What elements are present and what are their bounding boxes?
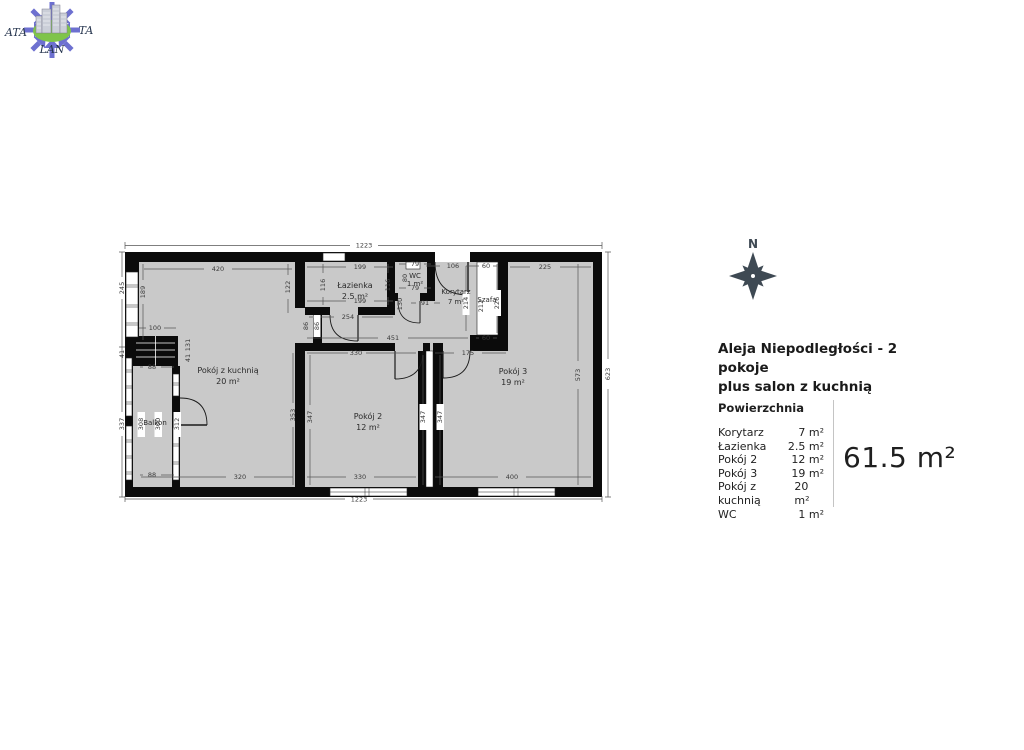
dim-label: 320 (234, 473, 246, 481)
dim-label: 225 (539, 263, 551, 271)
room-label-lazienka: Łazienka (336, 281, 372, 290)
listing-title-line2: plus salon z kuchnią (718, 378, 928, 397)
compass-star-icon (729, 252, 777, 300)
entrance-opening (435, 252, 470, 262)
dim-label: 573 (574, 369, 582, 381)
room-name: Pokój 2 (718, 453, 757, 467)
dim-label: 86 (313, 322, 321, 330)
logo-text-left: ATA (4, 26, 27, 39)
table-row: Korytarz 7 m² (718, 426, 824, 440)
dim-label: 116 (319, 279, 327, 291)
listing-title-line1: Aleja Niepodległości - 2 pokoje (718, 340, 928, 378)
room-label-wc: WC (409, 272, 421, 280)
dim-label: 88 (148, 363, 156, 371)
dim-label: 337 (118, 418, 126, 430)
dim-label: 116 (384, 279, 392, 291)
room-name: Korytarz (718, 426, 764, 440)
room-area: 19 m² (791, 467, 824, 481)
dim-label: 330 (354, 473, 366, 481)
floorplan-page: ATA TA LAN (0, 0, 1024, 750)
dim-label: 312 (173, 418, 181, 430)
dim-label: 189 (139, 286, 147, 298)
dim-label: 623 (604, 368, 612, 380)
area-table-header: Powierzchnia (718, 401, 804, 415)
room-area: 1 m² (798, 508, 824, 522)
dim-label: 88 (148, 471, 156, 479)
dim-label: 131 (184, 339, 192, 351)
room-name: Pokój z kuchnią (718, 480, 794, 507)
room-area: 20 m² (794, 480, 824, 507)
table-row: Pokój 2 12 m² (718, 453, 824, 467)
dim-label: 41 (118, 350, 126, 358)
dim-label: 130 (396, 298, 404, 310)
dim-label: 1223 (356, 242, 373, 250)
room-area-pokoj-2: 12 m² (356, 423, 380, 432)
dim-label: 175 (462, 349, 474, 357)
total-area: 61.5 m² (843, 441, 956, 474)
dim-label: 100 (149, 324, 161, 332)
dim-label: 451 (387, 334, 399, 342)
room-label-pokoj-z-kuchnia: Pokój z kuchnią (197, 365, 258, 375)
room-area-lazienka: 2.5 m² (342, 292, 368, 301)
agency-logo: ATA TA LAN (0, 0, 112, 64)
table-row: WC 1 m² (718, 508, 824, 522)
dim-label: 420 (212, 265, 224, 273)
table-row: Łazienka 2.5 m² (718, 440, 824, 454)
listing-title: Aleja Niepodległości - 2 pokoje plus sal… (718, 340, 928, 397)
room-area-pokoj-3: 19 m² (501, 378, 525, 387)
room-label-szafa: Szafa (477, 296, 496, 304)
dim-label: 91 (421, 299, 429, 307)
vent-slot (323, 253, 345, 261)
room-label-balkon: Balkon (143, 419, 167, 427)
room-area: 7 m² (798, 426, 824, 440)
room-area-korytarz: 7 m² (448, 298, 464, 306)
dim-label: 86 (302, 322, 310, 330)
dim-label: 245 (118, 282, 126, 294)
area-table: Korytarz 7 m² Łazienka 2.5 m² Pokój 2 12… (718, 426, 824, 521)
room-name: WC (718, 508, 737, 522)
dim-label: 79 (411, 260, 419, 268)
dim-label: 353 (289, 409, 297, 421)
dim-label: 60 (482, 262, 490, 270)
room-area-wc: 1 m² (407, 280, 423, 288)
dim-label: 1223 (351, 496, 368, 504)
room-name: Łazienka (718, 440, 766, 454)
dim-label: 199 (354, 263, 366, 271)
dim-label: 400 (506, 473, 518, 481)
room-name: Pokój 3 (718, 467, 757, 481)
floorplan-drawing: 1223 420 199 79 106 60 225 245 189 122 1… (110, 228, 625, 513)
logo-text-right: TA (79, 24, 94, 37)
dim-label: 330 (350, 349, 362, 357)
dim-label: 347 (419, 411, 427, 423)
dim-label: 254 (342, 313, 354, 321)
compass-north-label: N (748, 237, 758, 251)
room-label-korytarz: Korytarz (441, 288, 470, 296)
room-area-pokoj-z-kuchnia: 20 m² (216, 377, 240, 386)
logo-text-bottom: LAN (39, 43, 65, 56)
dim-label: 122 (284, 281, 292, 293)
room-label-pokoj-3: Pokój 3 (499, 366, 528, 376)
room-label-pokoj-2: Pokój 2 (354, 411, 383, 421)
table-row: Pokój 3 19 m² (718, 467, 824, 481)
table-divider (833, 400, 834, 507)
room-area: 12 m² (791, 453, 824, 467)
dim-label: 60 (482, 334, 490, 342)
table-row: Pokój z kuchnią 20 m² (718, 480, 824, 507)
room-area: 2.5 m² (788, 440, 824, 454)
compass-rose: N (713, 234, 793, 304)
dim-label: 347 (436, 411, 444, 423)
dim-label: 106 (447, 262, 459, 270)
dim-label: 41 (184, 354, 192, 362)
dim-label: 347 (306, 411, 314, 423)
